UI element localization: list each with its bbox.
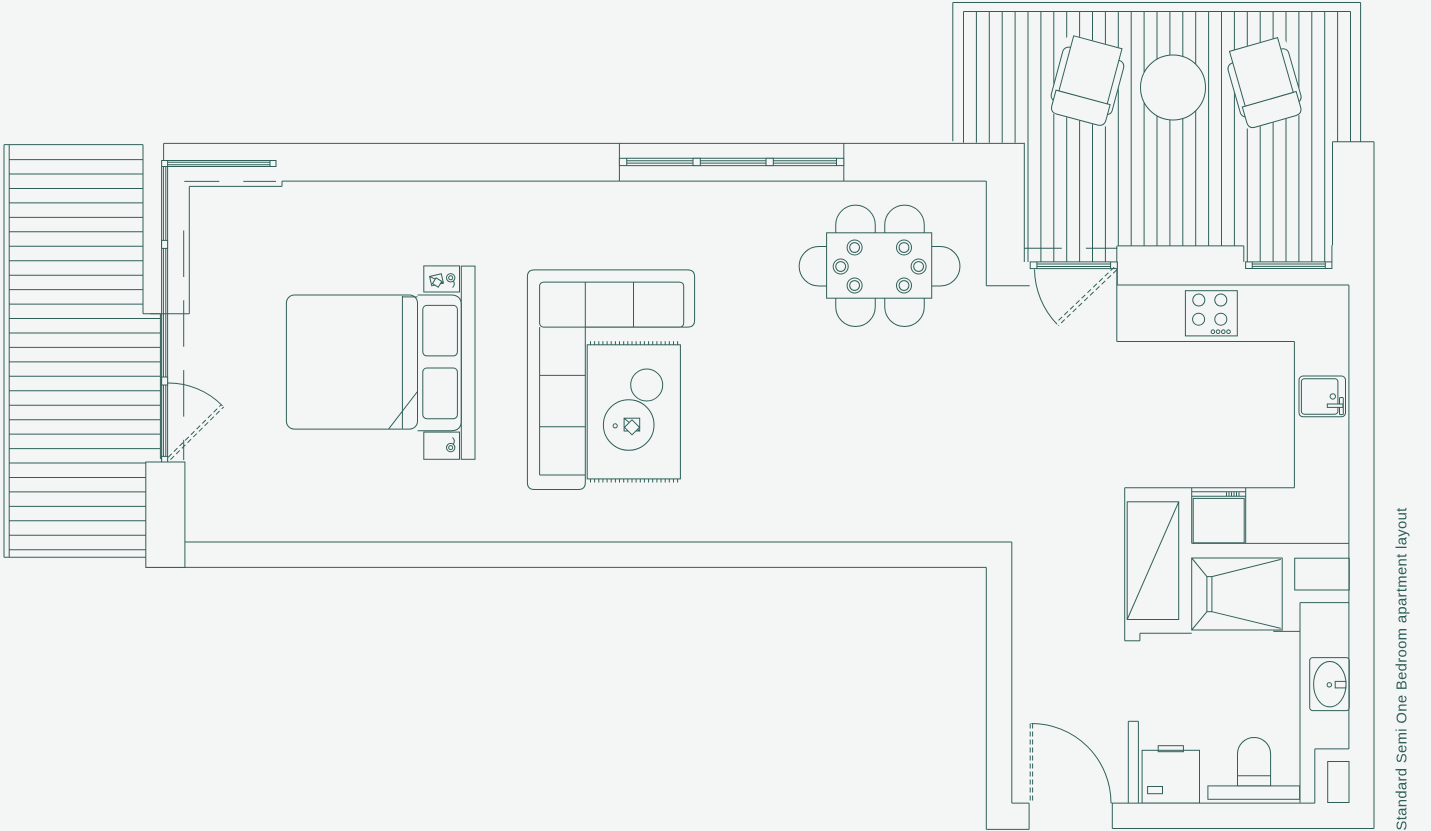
svg-text:Standard Semi One Bedroom apar: Standard Semi One Bedroom apartment layo… <box>1395 507 1411 830</box>
